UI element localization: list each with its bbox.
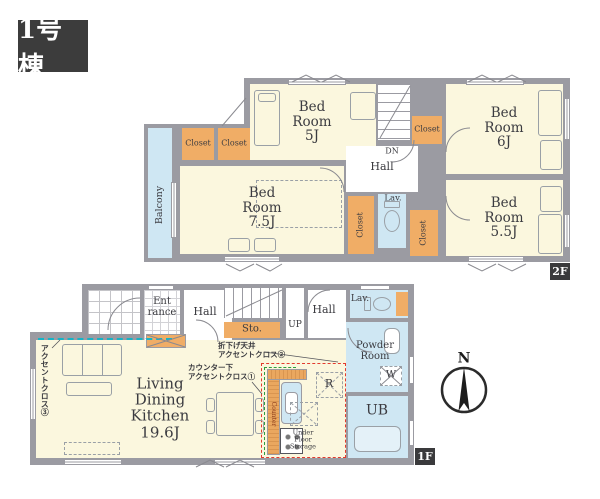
door-arc xyxy=(446,196,470,220)
door-arc xyxy=(446,128,470,152)
label-balcony: Balcony xyxy=(155,186,165,224)
door-arc xyxy=(108,298,140,330)
annotation-pointer xyxy=(252,382,262,394)
label-closet: Closet xyxy=(420,220,429,246)
stair-diagonal xyxy=(380,86,410,138)
label-f2-lav: Lav. xyxy=(384,194,401,203)
label-under-floor-storage: UnderFloorStorage xyxy=(290,429,316,450)
compass-north-label: N xyxy=(458,351,471,366)
window-peak xyxy=(196,460,254,467)
label-accent-ceiling: 折下げ天井 アクセントクロス② xyxy=(218,342,285,359)
label-bedroom-5-5j: BedRoom5.5J xyxy=(484,196,523,240)
roof-line xyxy=(222,98,246,126)
door-arc xyxy=(320,168,344,192)
window-peak xyxy=(468,75,526,82)
label-closet: Closet xyxy=(221,140,247,149)
label-f1-hall-center: Hall xyxy=(312,304,335,316)
label-closet: Closet xyxy=(185,140,211,149)
label-ldk: LivingDiningKitchen19.6J xyxy=(131,376,190,441)
label-accent-counter: カウンター下 アクセントクロス① xyxy=(188,364,255,381)
door-arc xyxy=(196,320,218,342)
label-bedroom-6j: BedRoom6J xyxy=(484,106,523,150)
label-bedroom-7-5j: BedRoom7.5J xyxy=(242,186,281,230)
label-f1-sto: Sto. xyxy=(242,325,262,336)
window-peak xyxy=(226,264,282,271)
label-f1-lav: Lav. xyxy=(351,295,369,305)
f2-badge: 2F xyxy=(550,263,570,280)
label-closet: Closet xyxy=(357,212,366,238)
label-closet: Closet xyxy=(414,126,440,135)
annotation-pointer xyxy=(52,340,60,348)
label-unit-bath: UB xyxy=(366,403,388,418)
label-entrance: Entrance xyxy=(148,297,177,319)
label-f2-hall: Hall xyxy=(370,161,393,173)
label-counter: Counter xyxy=(270,402,276,427)
label-f1-up: UP xyxy=(288,321,302,331)
compass-icon xyxy=(442,367,486,412)
f1-badge: 1F xyxy=(415,448,435,465)
label-washer: W xyxy=(386,371,396,382)
label-f1-hall-front: Hall xyxy=(193,306,216,318)
under-floor-storage-cross xyxy=(291,403,317,425)
stair-diagonal xyxy=(226,290,282,316)
plan-overlay xyxy=(0,0,600,499)
floor-plan: { "building_label": "1号棟", "compass": { … xyxy=(0,0,600,499)
window-peak xyxy=(468,264,526,271)
label-powder-room: PowderRoom xyxy=(356,341,394,363)
label-f2-dn: DN xyxy=(385,148,398,157)
shoe-cabinet-cross xyxy=(147,335,185,347)
label-fridge: R xyxy=(325,378,333,390)
label-accent-cloth-3: アクセントクロス③ xyxy=(40,344,49,416)
window-peak xyxy=(292,75,350,82)
label-bedroom-5j: BedRoom5J xyxy=(292,100,331,144)
